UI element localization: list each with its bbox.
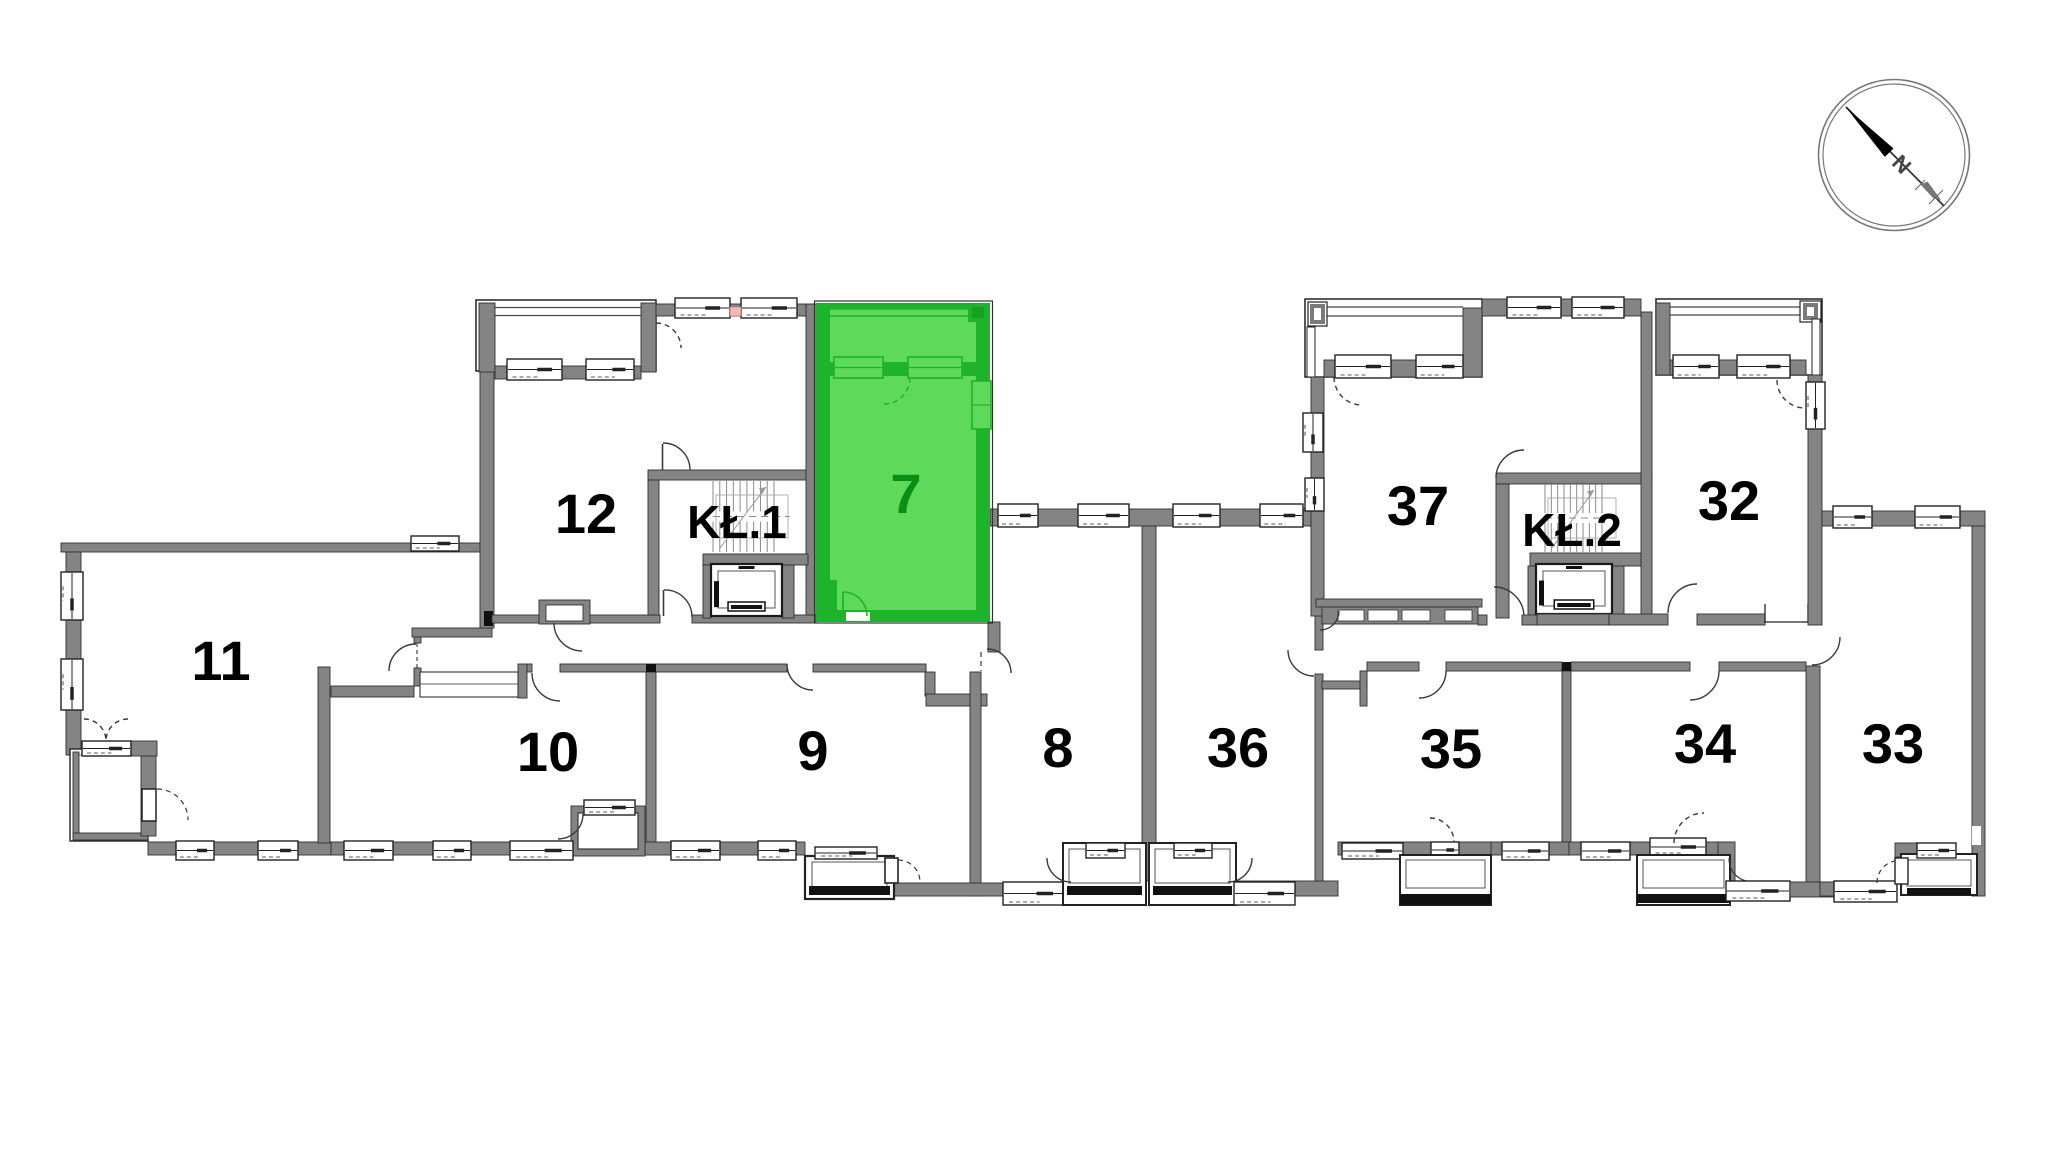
svg-text:35: 35 [1420, 717, 1482, 780]
svg-text:32: 32 [1698, 469, 1760, 532]
svg-text:KŁ.2: KŁ.2 [1522, 504, 1622, 556]
svg-text:KŁ.1: KŁ.1 [687, 496, 787, 548]
svg-text:9: 9 [797, 719, 828, 782]
svg-text:33: 33 [1862, 712, 1924, 775]
svg-text:37: 37 [1387, 474, 1449, 537]
svg-text:34: 34 [1674, 712, 1736, 775]
svg-text:8: 8 [1042, 716, 1073, 779]
svg-text:36: 36 [1207, 716, 1269, 779]
svg-text:10: 10 [517, 720, 579, 783]
svg-text:7: 7 [890, 462, 921, 525]
svg-text:11: 11 [191, 629, 250, 692]
svg-text:12: 12 [555, 482, 617, 545]
